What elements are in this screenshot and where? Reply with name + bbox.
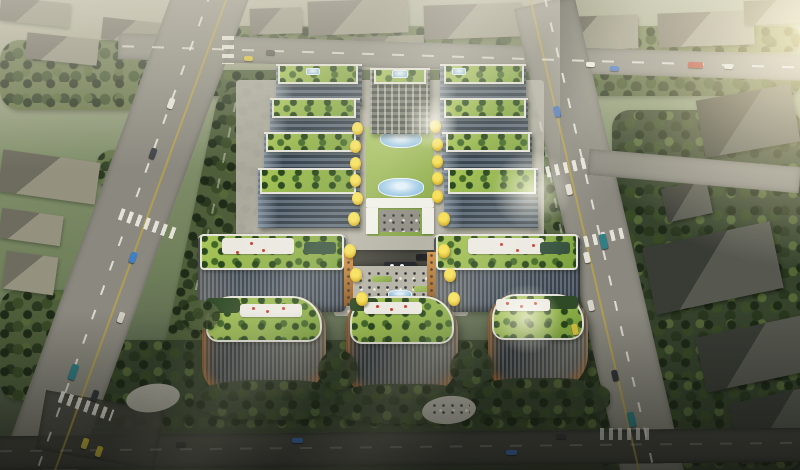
bg-building <box>2 251 59 296</box>
aerial-campus-rendering <box>0 0 800 470</box>
bloom-spot <box>492 150 572 230</box>
scene-layer-root <box>0 0 800 470</box>
bloom-spot <box>404 96 458 150</box>
shadow-vignette <box>0 310 800 470</box>
